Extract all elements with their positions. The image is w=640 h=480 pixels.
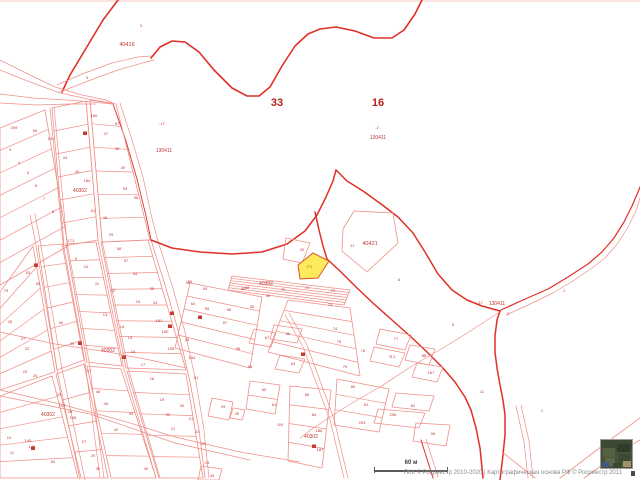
parcel-label: 30 — [96, 466, 101, 471]
parcel-divider — [101, 433, 142, 434]
parcel-divider — [184, 309, 257, 325]
parcel-label: 97 — [124, 258, 129, 263]
parcel-label: 20 — [300, 247, 305, 252]
parcel-label: 76 — [361, 348, 366, 353]
parcel-label: 66 — [286, 331, 291, 336]
building-footprint — [34, 264, 38, 268]
north-wavy-boundary — [151, 0, 422, 96]
parcel-label: 54 — [51, 459, 56, 464]
parcel-divider — [62, 217, 96, 223]
parcel-divider — [0, 458, 73, 462]
parcel-label: 15 — [136, 299, 141, 304]
road-line — [57, 56, 151, 85]
parcel-label: 84 — [312, 412, 317, 417]
road-line — [0, 60, 113, 103]
parcel-label: 16 — [372, 97, 384, 109]
parcel-label: 79 — [4, 288, 9, 293]
parcel-label: 40421 — [362, 241, 377, 247]
parcel-label: 145 — [25, 438, 32, 443]
overview-satellite-thumbnail[interactable] — [600, 439, 633, 469]
parcel-block[interactable] — [288, 386, 331, 468]
parcel-label: 64 — [191, 301, 196, 306]
parcel-label: 27 — [21, 336, 26, 341]
parcel-label: 28 — [235, 412, 239, 416]
parcel-label: 40302 — [101, 348, 115, 354]
parcel-label: 86 — [305, 392, 310, 397]
building-footprint — [78, 342, 82, 346]
northwest-diagonal-boundary — [62, 0, 118, 92]
parcel-label: 160 — [162, 329, 169, 334]
parcel-label: 20 — [166, 412, 171, 417]
parcel-label: 147 — [59, 403, 66, 408]
parcel-label: 34 — [153, 300, 158, 305]
parcel-label: 43 — [210, 473, 215, 478]
parcel-label: 40302 — [41, 412, 55, 418]
parcel-divider — [94, 147, 127, 149]
parcel-label: 31 — [194, 375, 199, 380]
parcel-label: 11 — [95, 281, 100, 286]
parcel-label: 24 — [33, 373, 38, 378]
map-canvas[interactable]: 1733316340416:17130411:2130411:1240421:1… — [0, 0, 640, 480]
parcel-divider — [54, 124, 88, 131]
selected-parcel-173[interactable] — [298, 253, 329, 279]
building-footprint — [122, 356, 126, 360]
parcel-label: 48 — [115, 146, 120, 151]
parcel-label: 52 — [186, 280, 191, 285]
parcel-label: 79 — [343, 364, 348, 369]
parcel-label: 90 — [431, 431, 436, 436]
parcel-label: 54 — [203, 286, 208, 291]
parcel-82[interactable] — [392, 393, 434, 411]
building-footprint — [168, 325, 172, 329]
parcel-label: 19 — [160, 397, 165, 402]
parcel-label: 22 — [195, 429, 200, 434]
parcel-label: 71 — [305, 285, 310, 290]
parcel-label: 146 — [29, 444, 36, 449]
parcel-label: 4 — [18, 160, 21, 165]
parcel-divider — [133, 392, 189, 394]
logo-mark — [631, 471, 635, 476]
parcel-divider — [81, 328, 115, 330]
parcel-label: 74 — [333, 326, 338, 331]
parcel-label: 6 — [35, 183, 38, 188]
parcel-label: 69 — [266, 293, 271, 298]
parcel-label: 61 — [91, 208, 96, 213]
thumbnail-terrain-patch — [617, 444, 630, 452]
parcel-divider — [248, 395, 278, 400]
parcel-label: 40 — [144, 466, 149, 471]
parcel-label: 40302 — [73, 188, 87, 194]
parcel-label: 11 — [10, 450, 15, 455]
parcel-label: 52 — [36, 281, 41, 286]
parcel-label: 44 — [129, 411, 134, 416]
parcel-label: 10 — [7, 435, 12, 440]
parcel-label: 30 — [180, 403, 185, 408]
parcel-label: 87 — [115, 121, 120, 126]
parcel-label: 21 — [189, 416, 194, 421]
parcel-divider — [0, 149, 52, 173]
thumbnail-terrain-patch — [623, 461, 631, 467]
parcel-label: 3 — [140, 23, 143, 28]
parcel-label: 63 — [291, 361, 296, 366]
parcel-label: 29 — [221, 404, 226, 409]
parcel-label: 14 — [120, 324, 125, 329]
parcel-label: 50 — [59, 320, 64, 325]
parcel-label: 53 — [26, 270, 31, 275]
parcel-label: 160 — [91, 113, 98, 118]
parcel-label: :2 — [375, 125, 379, 130]
parcel-label: 25 — [57, 392, 62, 397]
parcel-label: 1 — [563, 288, 566, 293]
parcel-label: 6 — [398, 277, 401, 282]
parcel-label: 26 — [68, 409, 73, 414]
parcel-label: 109 — [277, 423, 283, 427]
parcel-label: 81 — [364, 402, 369, 407]
parcel-label: 187 — [317, 447, 324, 452]
parcel-label: 56 — [227, 307, 232, 312]
parcel-label: 7 — [43, 196, 46, 201]
thumbnail-terrain-patch — [613, 463, 621, 468]
parcel-label: 45 — [104, 401, 109, 406]
parcel-label: 23 — [23, 369, 28, 374]
cross-lane — [0, 396, 250, 460]
parcel-block[interactable] — [0, 246, 55, 390]
parcel-label: 28 — [185, 337, 190, 342]
parcel-label: 8 — [52, 209, 55, 214]
selected-parcel-label: 173 — [306, 265, 312, 269]
parcel-divider — [110, 289, 162, 290]
parcel-label: 75 — [337, 339, 342, 344]
parcel-label: 70 — [281, 287, 286, 292]
parcel-label: :12 — [350, 244, 355, 248]
street-line — [516, 406, 528, 478]
parcel-divider — [0, 129, 48, 150]
parcel-label: 203 — [359, 420, 366, 425]
parcel-label: 57 — [223, 320, 228, 325]
parcel-label: 35 — [150, 286, 155, 291]
parcel-divider — [75, 295, 107, 296]
parcel-label: 67 — [265, 335, 270, 340]
parcel-block[interactable] — [0, 110, 68, 285]
parcel-label: 60 — [33, 128, 38, 133]
building-footprint — [83, 132, 87, 136]
parcel-label: 184 — [84, 178, 91, 183]
parcel-label: 206 — [390, 412, 397, 417]
parcel-divider — [335, 410, 382, 418]
parcel-label: 40416 — [119, 42, 134, 48]
parcel-divider — [41, 263, 65, 266]
parcel-divider — [336, 394, 386, 403]
parcel-label: :17 — [159, 121, 165, 126]
parcel-206[interactable] — [374, 409, 425, 428]
road-line — [0, 103, 96, 105]
parcel-label: 130411 — [489, 301, 506, 307]
northeast-band — [506, 198, 640, 315]
parcel-label: 49 — [121, 165, 126, 170]
parcel-29[interactable] — [208, 398, 233, 420]
parcel-label: 15 — [128, 335, 133, 340]
parcel-label: 60 — [241, 286, 246, 291]
parcel-divider — [181, 322, 255, 340]
cross-lane — [0, 390, 300, 462]
parcel-label: 11 — [480, 389, 485, 394]
parcel-label: 58 — [236, 346, 241, 351]
parcel-divider — [153, 457, 200, 458]
parcel-label: 3 — [507, 312, 509, 316]
building-footprint — [170, 312, 174, 316]
parcel-label: 78-1 — [388, 355, 395, 359]
parcel-label: 130411 — [370, 135, 387, 141]
parcel-label: 46 — [103, 215, 108, 220]
road-line — [0, 70, 111, 103]
building-footprint — [301, 353, 305, 357]
parcel-label: 10 — [84, 264, 89, 269]
parcel-label: 72 — [331, 288, 336, 293]
parcel-label: 34 — [133, 271, 138, 276]
building-footprint — [198, 316, 202, 320]
parcel-divider — [104, 256, 153, 258]
parcel-label: 45 — [75, 169, 80, 174]
parcel-divider — [0, 288, 40, 325]
parcel-label: 18 — [150, 376, 155, 381]
parcel-divider — [56, 147, 90, 154]
northeast-band — [501, 187, 640, 310]
parcel-label: 12 — [111, 288, 116, 293]
parcel-divider — [290, 405, 329, 410]
parcel-label: 96 — [134, 195, 139, 200]
parcel-label: 68 — [245, 285, 250, 290]
parcel-label: 171 — [68, 238, 75, 243]
parcel-divider — [96, 171, 133, 172]
parcel-label: 88 — [422, 353, 427, 358]
parcel-block[interactable] — [87, 366, 156, 478]
parcel-label: 24 — [205, 460, 210, 465]
parcel-label: 58 — [117, 246, 122, 251]
parcel-label: 21 — [171, 426, 176, 431]
parcel-label: 181 — [156, 318, 163, 323]
parcel-label: 191 — [48, 136, 55, 141]
parcel-label: 155 — [168, 346, 175, 351]
parcel-label: 47 — [104, 131, 109, 136]
parcel-label: 23 — [201, 441, 206, 446]
parcel-divider — [187, 296, 260, 311]
parcel-divider — [280, 321, 354, 335]
parcel-label: 13 — [103, 312, 108, 317]
parcel-label: 93 — [123, 186, 128, 191]
parcel-label: 154 — [189, 355, 196, 360]
copyright-attribution: ПКК © Росреестр 2010-2020 | Картографиче… — [404, 470, 622, 476]
street-line — [30, 215, 80, 480]
road-line — [0, 94, 112, 104]
parcel-divider — [44, 283, 69, 288]
parcel-label: 209 — [11, 125, 18, 130]
parcel-divider — [60, 194, 94, 200]
parcel-label: 44 — [63, 155, 68, 160]
parcel-divider — [0, 417, 62, 429]
parcel-divider — [272, 342, 358, 363]
parcel-label: 47 — [87, 368, 92, 373]
parcel-label: 60 — [262, 387, 267, 392]
parcel-label: 46 — [96, 389, 101, 394]
parcel-label: 1 — [541, 408, 544, 413]
parcel-label: 40302 — [304, 434, 318, 440]
parcel-label: 130411 — [156, 148, 173, 154]
parcel-label: 17 — [141, 362, 146, 367]
parcel-label: 6 — [452, 322, 455, 327]
parcel-label: 3 — [86, 75, 89, 80]
parcel-label: 55 — [205, 306, 210, 311]
parcel-label: 29 — [91, 453, 96, 458]
parcel-label: 16 — [131, 349, 136, 354]
parcel-label: 49 — [70, 341, 75, 346]
parcel-label: 59 — [248, 364, 253, 369]
parcel-label: 167 — [428, 370, 435, 375]
parcel-label: 28 — [8, 319, 13, 324]
parcel-label: 22 — [25, 346, 30, 351]
thumbnail-terrain-patch — [602, 462, 609, 467]
thumbnail-terrain-patch — [603, 448, 615, 457]
parcel-label: :17 — [477, 300, 483, 305]
parcel-label: 80 — [351, 384, 356, 389]
parcel-divider — [0, 330, 48, 357]
junction-south-boundary — [495, 311, 505, 480]
parcel-label: 5 — [27, 170, 30, 175]
open-land-west-arc — [151, 170, 336, 254]
parcel-divider — [106, 456, 149, 457]
parcel-divider — [117, 321, 172, 322]
open-land-east-arc — [336, 170, 500, 311]
cadastral-map-viewport: 1733316340416:17130411:2130411:1240421:1… — [0, 0, 640, 480]
parcel-label: 65 — [250, 304, 255, 309]
parcel-label: 29 — [109, 232, 114, 237]
parcel-label: 77 — [394, 336, 399, 341]
parcel-label: 40302 — [259, 281, 273, 287]
parcel-label: 33 — [271, 97, 283, 109]
parcel-divider — [62, 393, 90, 401]
parcel-divider — [284, 310, 352, 321]
parcel-label: 27 — [82, 439, 87, 444]
parcel-label: 3 — [9, 147, 12, 152]
parcel-divider — [0, 396, 57, 412]
parcel-label: 156 — [70, 415, 77, 420]
parcel-divider — [69, 260, 100, 261]
parcel-label: 73 — [328, 302, 333, 307]
building-footprint — [312, 445, 316, 449]
parcel-label: 61 — [272, 402, 277, 407]
parcel-block[interactable] — [127, 371, 203, 478]
parcel-label: 82 — [411, 403, 416, 408]
parcel-label: 186 — [316, 428, 323, 433]
parcel-label: 42 — [114, 427, 119, 432]
